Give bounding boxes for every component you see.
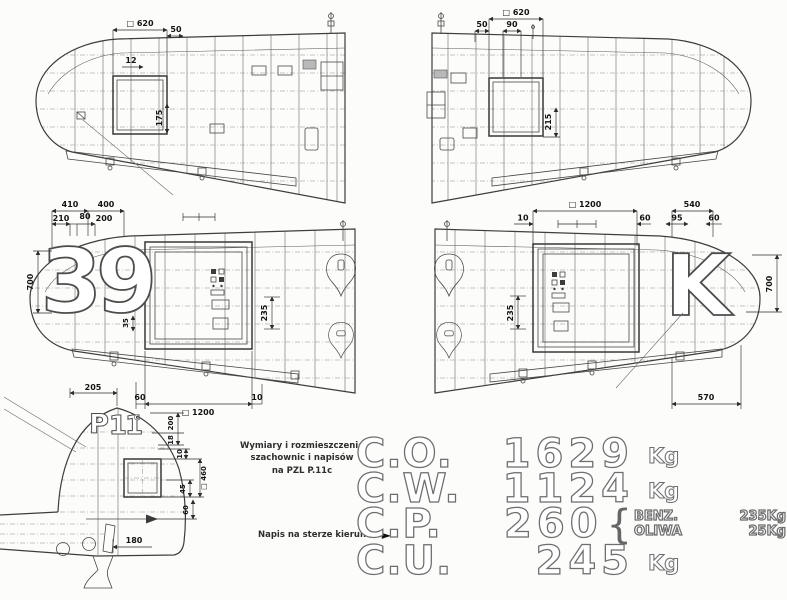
hinge-fairing <box>329 322 354 358</box>
aileron <box>490 349 722 383</box>
dim-label-180: 180 <box>126 536 143 545</box>
dim-label-12: 12 <box>125 56 136 65</box>
hinge-fairing <box>327 254 356 296</box>
wing-top-left: □ 620 50 12 175 <box>30 12 350 210</box>
dim-label-60a: 60 <box>639 214 651 223</box>
fuselage-aft <box>0 512 158 556</box>
weight-stencil-table: C.O. 1629 Kg C.W. 1124 Kg C.P. 260 { BEN… <box>356 437 786 579</box>
checkerboard-frame <box>145 242 252 349</box>
dim-label-90: 90 <box>506 20 518 29</box>
dim-label-10: 10 <box>176 449 184 459</box>
dim-label-10: 10 <box>517 214 529 223</box>
bracing-wire <box>4 409 76 452</box>
bracing-wire <box>4 397 86 447</box>
dim-label-235: 235 <box>260 304 269 321</box>
weight-unit: Kg <box>648 472 679 502</box>
dim-label-460: □ 460 <box>200 466 208 490</box>
hinge-fairing <box>437 322 462 358</box>
caption-line-3: na PZL P.11c <box>232 465 372 477</box>
gun-barrel-icon <box>445 220 450 241</box>
dim-label-410: 410 <box>62 200 79 209</box>
dim-label-50: 50 <box>476 20 488 29</box>
checkerboard-frame <box>489 78 543 136</box>
wing-bottom-right-dimensions: □ 1200 540 10 60 95 60 235 700 570 <box>506 200 782 409</box>
dim-label-45: 45 <box>179 484 187 494</box>
wing-marking-39: 39 <box>41 230 152 333</box>
wing-bottom-right: K □ 1200 540 10 60 <box>430 200 782 409</box>
checkerboard-frame <box>533 244 639 352</box>
dim-label-700: 700 <box>765 275 774 292</box>
benz-value: 235Kg <box>739 509 786 524</box>
fin-marking-letter: P <box>89 409 109 440</box>
gun-barrel-icon <box>328 12 334 34</box>
dim-label-620: □ 620 <box>126 19 153 28</box>
dim-label-10: 10 <box>251 393 263 402</box>
leader-line <box>616 313 683 388</box>
insignia-detail <box>552 272 569 331</box>
dim-label-60b: 60 <box>708 214 720 223</box>
dim-label-1200: □ 1200 <box>182 408 215 417</box>
dim-label-1200: □ 1200 <box>569 200 602 209</box>
dim-label-400: 400 <box>98 200 115 209</box>
weight-label: C.U. <box>356 544 484 578</box>
dim-label-50: 50 <box>170 25 182 34</box>
dim-label-95: 95 <box>671 214 683 223</box>
wing-top-right: □ 620 50 90 215 <box>427 8 755 210</box>
wing-bottom-left: 39 410 400 210 80 <box>25 200 360 417</box>
weight-row-cu: C.U. 245 Kg <box>356 544 786 579</box>
weight-label: C.P. <box>356 507 470 541</box>
tail-side-view: P 11 c 205 200 18 10 45 □ 460 60 180 <box>0 383 208 588</box>
fin-marking-suffix: c <box>134 412 140 423</box>
weight-value: 245 <box>484 544 634 578</box>
dim-label-18: 18 <box>167 435 175 445</box>
weight-unit: Kg <box>648 437 679 467</box>
dim-label-200: 200 <box>167 416 175 431</box>
caption-line-1: Wymiary i rozmieszczenie <box>232 440 372 452</box>
dim-label-540: 540 <box>684 200 701 209</box>
pzl-p11c-markings-drawing: □ 620 50 12 175 <box>0 0 787 600</box>
weight-value: 260 <box>470 507 603 541</box>
dim-label-175: 175 <box>155 109 164 126</box>
dim-label-60: 60 <box>134 393 146 402</box>
dim-label-570: 570 <box>698 393 715 402</box>
dim-label-80: 80 <box>79 212 91 221</box>
dim-label-620: □ 620 <box>502 8 529 17</box>
insignia-detail <box>211 269 229 329</box>
drawing-caption: Wymiary i rozmieszczenie szachownic i na… <box>232 440 372 477</box>
hinge-fairing <box>435 254 464 296</box>
aileron <box>72 349 299 383</box>
oliwa-value: 25Kg <box>749 524 786 539</box>
dim-label-35: 35 <box>122 318 130 328</box>
wing-top-right-dimensions: □ 620 50 90 215 <box>475 8 560 137</box>
rudder-checkerboard <box>124 459 161 497</box>
dim-label-200: 200 <box>96 214 113 223</box>
caption-line-2: szachownic i napisów <box>232 452 372 464</box>
weight-unit: Kg <box>648 544 679 574</box>
aileron <box>492 151 718 186</box>
dim-label-235: 235 <box>506 304 515 321</box>
dim-label-215: 215 <box>544 113 553 130</box>
oliwa-label: OLIWA <box>634 524 682 539</box>
benz-label: BENZ. <box>634 509 678 524</box>
dim-label-60: 60 <box>182 505 190 515</box>
tail-skid <box>84 556 113 588</box>
dim-label-210: 210 <box>53 214 70 223</box>
dim-label-700: 700 <box>26 273 35 290</box>
dim-label-205: 205 <box>85 383 102 392</box>
access-panels <box>427 70 477 150</box>
access-panels <box>210 60 343 150</box>
